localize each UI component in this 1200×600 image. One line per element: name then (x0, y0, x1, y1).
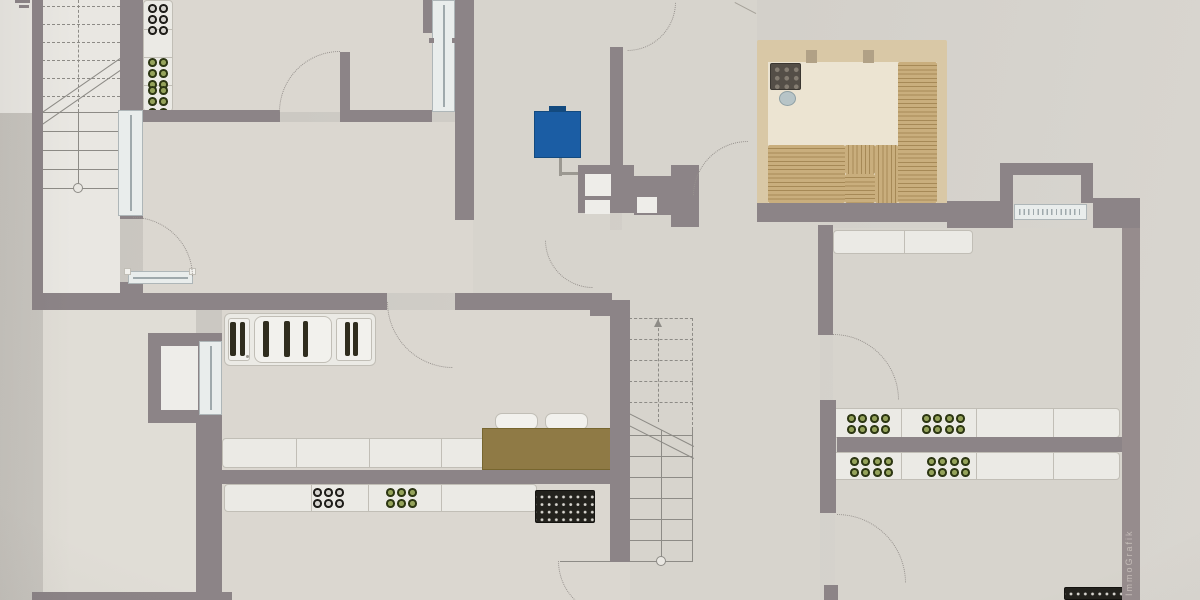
shelf-divider (976, 409, 977, 437)
stairs-lower-flight (42, 112, 120, 113)
bottle-top (933, 414, 942, 423)
bottle-top (881, 425, 890, 434)
bottle-top (397, 488, 406, 497)
stair-rail (661, 430, 662, 561)
tool-mark (345, 322, 350, 356)
beverage-crate (1064, 587, 1128, 600)
sauna-bench (845, 145, 875, 174)
bottle-top (945, 425, 954, 434)
room-top-left-floor (423, 33, 432, 112)
bottle-top (148, 58, 157, 67)
wall (610, 316, 630, 562)
stair-newel (656, 556, 666, 566)
stair-edge (692, 318, 693, 430)
bottle-top (159, 4, 168, 13)
shelf-divider (901, 453, 902, 479)
corridor-top-floor (610, 0, 622, 47)
wall (120, 282, 143, 310)
stairs-upper-flight (629, 381, 693, 382)
shelf-divider (368, 485, 369, 511)
bottle-group (921, 413, 943, 435)
wall (222, 470, 630, 484)
bottle-top (945, 414, 954, 423)
shelf-divider (904, 231, 905, 253)
bottle-top (933, 425, 942, 434)
stairs-upper-flight (629, 402, 693, 403)
door-leaf-pane (443, 5, 445, 107)
bottle-top (961, 457, 970, 466)
bottle-top (148, 69, 157, 78)
stair-rail (78, 112, 79, 188)
sauna-heater (770, 63, 801, 90)
bottle-top (950, 457, 959, 466)
door-leaf (199, 341, 222, 415)
window (1014, 204, 1087, 220)
door-leaf-pane (210, 346, 212, 410)
bottle-top (408, 499, 417, 508)
bottle-top (313, 488, 322, 497)
bottle-group (385, 487, 418, 509)
stairs-upper-flight (629, 360, 693, 361)
stairs-lower-flight (42, 169, 120, 170)
margin-mark (19, 5, 29, 8)
bottle-top (861, 457, 870, 466)
bottle-group (846, 413, 868, 435)
bottle-top (313, 499, 322, 508)
bottle-top (873, 457, 882, 466)
bottle-top (938, 457, 947, 466)
stair-rail (658, 318, 659, 422)
duct-wall (671, 165, 699, 227)
stair-rail (78, 0, 79, 112)
bottle-top (159, 69, 168, 78)
bottle-top (884, 457, 893, 466)
bottle-top (870, 414, 879, 423)
wall (757, 203, 947, 222)
wall (196, 423, 222, 600)
stair-stringer (692, 430, 693, 561)
wall (837, 437, 1122, 452)
bottle-top (850, 468, 859, 477)
hallway-floor (610, 230, 630, 300)
sauna-wall-joint (806, 50, 817, 63)
tool-mark (303, 321, 308, 357)
tool-mark (230, 322, 236, 356)
margin-mark (15, 0, 30, 3)
shelf-divider (901, 409, 902, 437)
stair-direction-arrow (654, 319, 662, 327)
bottle-top (873, 468, 882, 477)
boiler (534, 111, 581, 158)
bottle-top (386, 488, 395, 497)
bottle-group (944, 413, 966, 435)
window-pane (130, 115, 132, 211)
stairs-upper-flight (42, 6, 120, 7)
stairs-upper-flight (42, 24, 120, 25)
stairs-upper-flight (42, 60, 120, 61)
wall (824, 585, 838, 600)
wall (820, 400, 836, 513)
wall (818, 225, 833, 335)
bottle-top (847, 425, 856, 434)
bottle-top (159, 86, 168, 95)
outer-wall (32, 592, 232, 600)
hinge-dot (124, 268, 131, 275)
stairs-lower-flight (42, 150, 120, 151)
shelf-divider (441, 439, 442, 467)
bottle-top (159, 26, 168, 35)
bottle-top (961, 468, 970, 477)
bottle-top (858, 425, 867, 434)
storage-shelf (222, 438, 510, 468)
hinge-mark (429, 38, 434, 43)
bottle-top (148, 86, 157, 95)
wall (1093, 198, 1140, 228)
stairwell-floor (42, 0, 120, 293)
wall (130, 110, 280, 122)
bottle-group (872, 456, 894, 478)
wall-niche (585, 174, 611, 196)
bottle-top (148, 15, 157, 24)
wall (32, 293, 387, 310)
shelf-divider (441, 485, 442, 511)
hinge-mark (452, 38, 457, 43)
wall (340, 52, 350, 110)
wall (455, 293, 612, 310)
bottle-group (926, 456, 948, 478)
bottle-group (312, 487, 345, 509)
storage-shelf (833, 230, 973, 254)
photo-margin-strip (0, 0, 32, 113)
room-right-a-floor (833, 228, 1122, 437)
beverage-crate (535, 490, 595, 523)
wall (340, 110, 432, 122)
sauna-bench (768, 145, 845, 203)
bottle-top (324, 499, 333, 508)
wall (1081, 163, 1093, 203)
bottle-group (849, 456, 871, 478)
window (118, 110, 143, 216)
sauna-wall-joint (863, 50, 874, 63)
wall (1000, 163, 1093, 175)
tool-mark (263, 321, 269, 357)
bottle-top (956, 425, 965, 434)
outer-wall (32, 0, 43, 310)
bottle-top (159, 58, 168, 67)
bottle-top (386, 499, 395, 508)
wall (947, 201, 1003, 228)
wall (590, 300, 630, 316)
shelf-divider (1053, 409, 1054, 437)
bottle-group (869, 413, 891, 435)
hallway-floor (628, 230, 820, 600)
watermark-text: ImmoGrafik (1124, 418, 1139, 596)
wall (610, 47, 623, 165)
bottle-top (881, 414, 890, 423)
bottle-top (148, 4, 157, 13)
bottle-top (927, 468, 936, 477)
wall-niche (585, 200, 610, 214)
bottle-top (148, 26, 157, 35)
bottle-group (147, 3, 169, 36)
wall-niche (637, 197, 657, 213)
wall (120, 0, 143, 112)
shelf-divider (369, 439, 370, 467)
bottle-top (335, 488, 344, 497)
stairs-upper-flight (629, 339, 693, 340)
bottle-top (870, 425, 879, 434)
tool-mark (240, 322, 245, 356)
wood-desk (482, 428, 612, 470)
bottle-top (938, 468, 947, 477)
bottle-top (159, 97, 168, 106)
stair-newel (73, 183, 83, 193)
floor-plan: ImmoGrafik (0, 0, 1200, 600)
sauna-bucket (779, 91, 796, 106)
bottle-top (324, 488, 333, 497)
sauna-bench (898, 62, 937, 203)
bottle-top (148, 97, 157, 106)
bottle-top (950, 468, 959, 477)
bottle-top (861, 468, 870, 477)
shelf-divider (296, 439, 297, 467)
hallway-floor (757, 222, 820, 230)
bottle-top (858, 414, 867, 423)
tool-mark (284, 321, 290, 357)
bottle-top (956, 414, 965, 423)
bottle-top (927, 457, 936, 466)
sauna-bench (875, 145, 898, 203)
boiler-cap (549, 106, 566, 112)
bottle-top (397, 499, 406, 508)
tool-mark (353, 322, 358, 356)
shelf-divider (976, 453, 977, 479)
bottle-top (847, 414, 856, 423)
stairs-lower-flight (42, 131, 120, 132)
bottle-top (335, 499, 344, 508)
window-pane (1019, 209, 1082, 215)
bottle-top (159, 15, 168, 24)
pencil-dot (246, 355, 249, 358)
stairs-upper-flight (42, 42, 120, 43)
bottle-top (408, 488, 417, 497)
bottle-group (949, 456, 971, 478)
bottle-top (884, 468, 893, 477)
bottle-top (850, 457, 859, 466)
wall (455, 0, 474, 220)
bottle-top (922, 425, 931, 434)
sauna-bench (845, 174, 875, 203)
storage-shelf (224, 484, 537, 512)
door-leaf (432, 0, 455, 112)
door-recess (161, 346, 198, 410)
shelf-divider (1053, 453, 1054, 479)
bottle-top (922, 414, 931, 423)
